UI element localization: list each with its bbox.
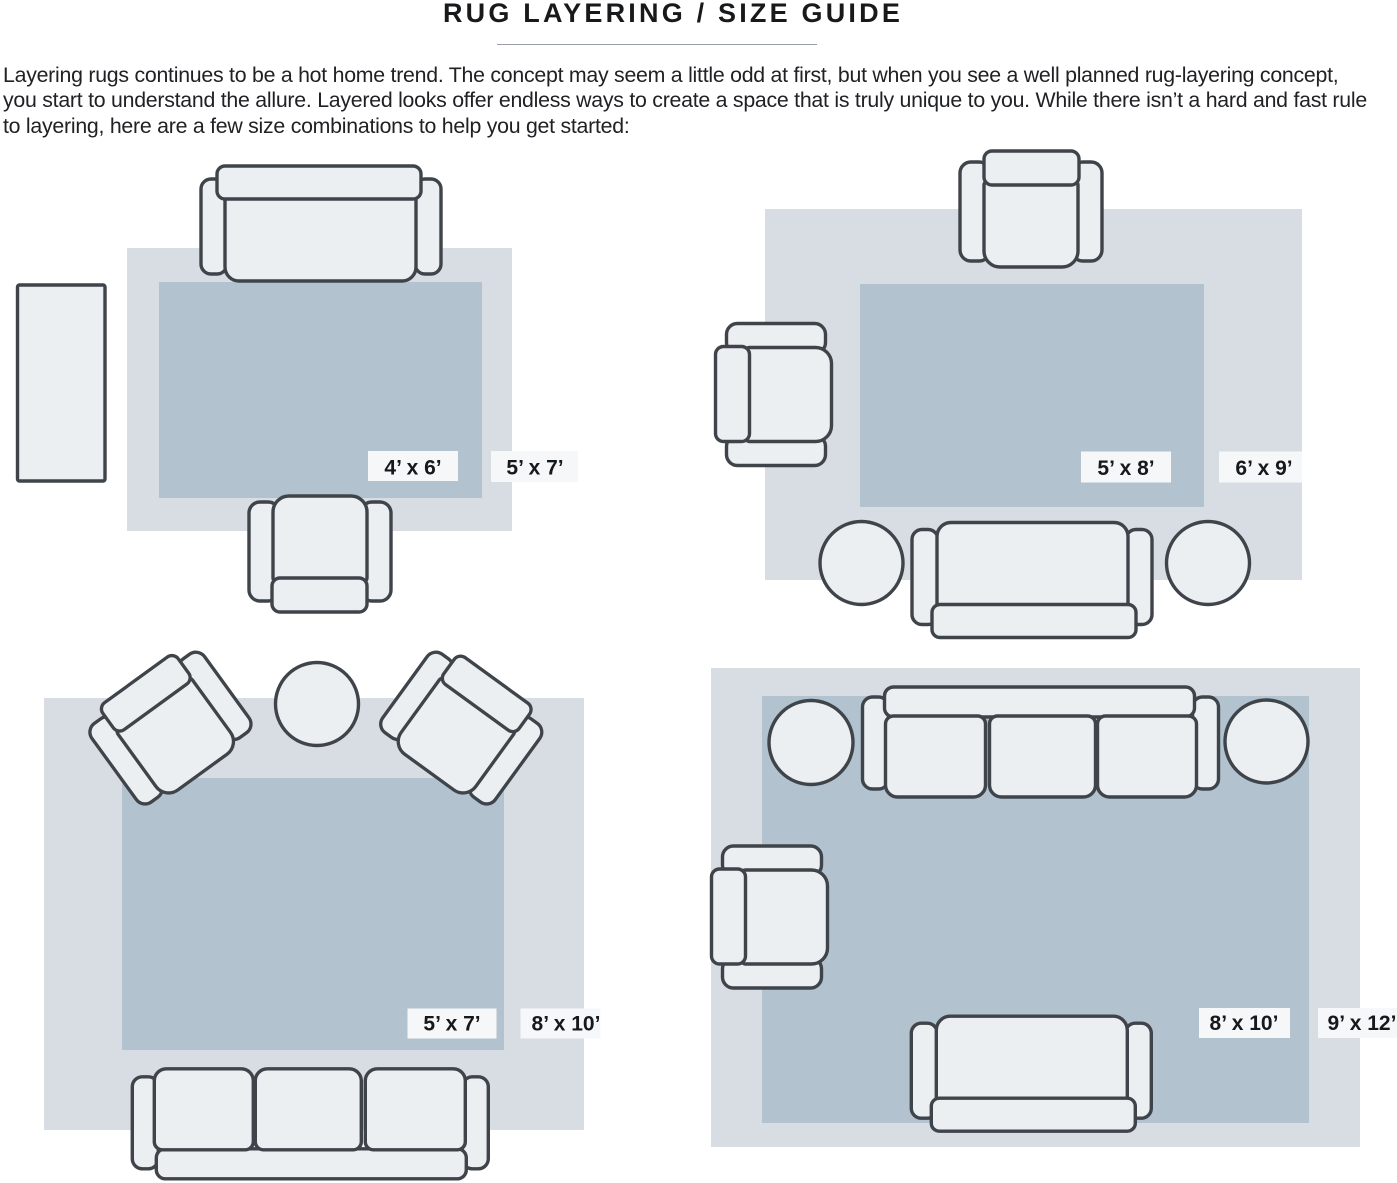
svg-text:5’ x 7’: 5’ x 7’ [423,1013,480,1036]
svg-text:8’ x 10’: 8’ x 10’ [1210,1012,1279,1035]
svg-text:8’ x 10’: 8’ x 10’ [532,1013,601,1036]
svg-text:5’ x 7’: 5’ x 7’ [506,457,563,480]
svg-text:6’ x 9’: 6’ x 9’ [1235,457,1292,480]
svg-text:5’ x 8’: 5’ x 8’ [1097,457,1154,480]
svg-text:4’ x 6’: 4’ x 6’ [384,457,441,480]
svg-text:9’ x 12’: 9’ x 12’ [1328,1012,1397,1035]
